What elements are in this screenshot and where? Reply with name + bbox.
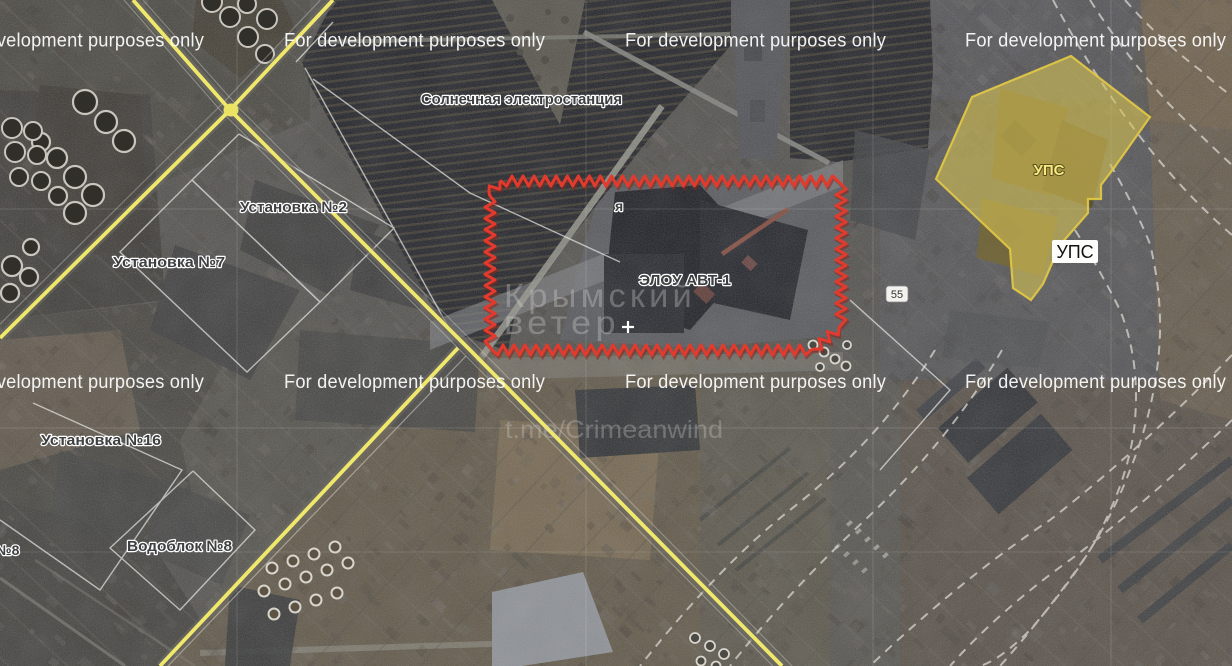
svg-text:55: 55 [891,289,903,301]
svg-text:For development purposes only: For development purposes only [625,371,886,393]
svg-text:№8: №8 [0,542,20,558]
svg-text:Установка №16: Установка №16 [41,432,161,449]
svg-text:ветер: ветер [504,304,620,341]
svg-text:For development purposes only: For development purposes only [0,371,204,393]
svg-text:For development purposes only: For development purposes only [965,30,1226,52]
svg-text:УПС: УПС [1056,242,1093,262]
svg-text:я: я [615,198,623,214]
svg-text:Солнечная электростанция: Солнечная электростанция [421,91,622,108]
svg-text:For development purposes only: For development purposes only [965,371,1226,393]
svg-text:For development purposes only: For development purposes only [0,30,204,52]
svg-text:Установка №2: Установка №2 [240,199,347,216]
svg-text:УПС: УПС [1034,162,1065,179]
svg-text:For development purposes only: For development purposes only [284,30,545,52]
svg-text:Установка №7: Установка №7 [113,254,225,271]
svg-text:For development purposes only: For development purposes only [625,30,886,52]
svg-text:t.me/Crimeanwind: t.me/Crimeanwind [505,416,723,444]
svg-text:For development purposes only: For development purposes only [284,371,545,393]
svg-text:Водоблок №8: Водоблок №8 [127,538,232,555]
